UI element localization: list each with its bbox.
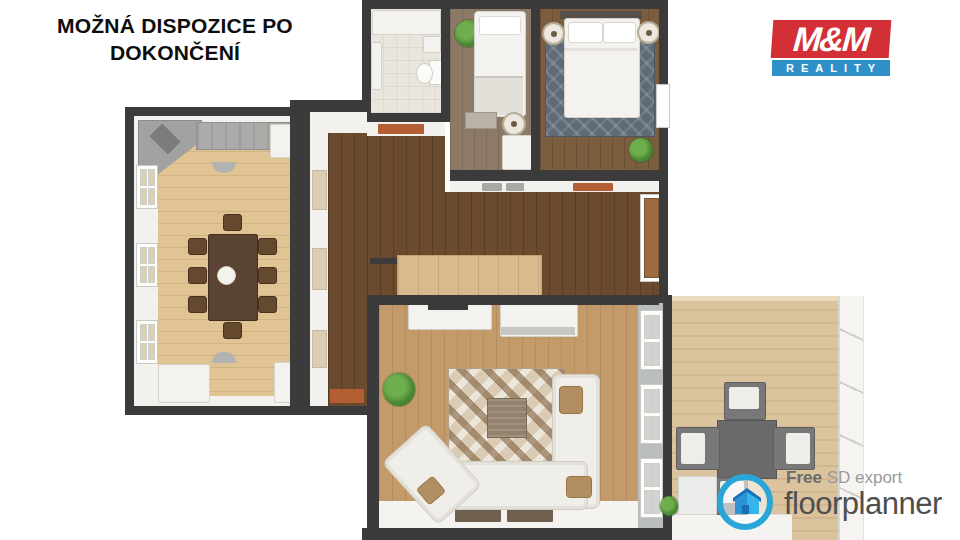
terrace-chair <box>676 427 720 470</box>
floorplanner-logo-ring <box>717 474 773 530</box>
dining-chair <box>223 322 242 339</box>
wall-niche <box>312 248 327 290</box>
wall <box>367 295 659 305</box>
wall-niche <box>312 170 327 210</box>
dining-window <box>136 243 158 287</box>
wall <box>531 0 540 172</box>
doormat-terracotta <box>573 183 613 191</box>
single-bed-pillow <box>479 16 521 35</box>
doormat-gray <box>482 183 502 191</box>
floorplan-render: MOŽNÁ DISPOZICE PO DOKONČENÍ M&M REALITY <box>0 0 960 540</box>
wall <box>659 182 668 303</box>
hallway-floor <box>328 133 367 406</box>
plate <box>217 266 236 285</box>
doormat-terracotta <box>330 389 364 403</box>
terrace-chair <box>773 427 815 470</box>
page-title-line2: DOKONČENÍ <box>110 41 240 64</box>
terrace-white-cube <box>678 476 717 515</box>
plant-master-bedroom <box>629 138 653 162</box>
coffee-table <box>487 398 527 438</box>
sofa-cushion <box>559 386 583 414</box>
dining-chair <box>258 267 277 284</box>
nightstand-lamp-right <box>637 21 660 44</box>
dining-chair <box>223 214 242 231</box>
living-window <box>640 384 663 444</box>
dining-chair <box>258 238 277 255</box>
wall <box>290 100 370 112</box>
doormat-terracotta <box>378 124 424 134</box>
toilet-bowl <box>416 63 433 84</box>
wall-niche <box>312 330 327 368</box>
wall <box>125 107 134 415</box>
floorplanner-export-label: Free SD export <box>786 468 902 488</box>
dining-chair <box>258 296 277 313</box>
floorplanner-house-icon <box>723 480 767 524</box>
sink <box>423 36 441 53</box>
plant-living-room <box>383 373 415 406</box>
bathroom-cabinet <box>371 42 382 90</box>
dining-window <box>136 165 158 209</box>
terrace-deck-edge <box>672 296 838 301</box>
shower-tub <box>372 10 441 35</box>
single-bed-blanket <box>475 76 523 115</box>
pouf <box>502 112 526 136</box>
floorplanner-brand-label: floorplanner <box>784 486 942 522</box>
nightstand-lamp-left <box>542 22 565 45</box>
media-cabinet-base <box>501 327 575 335</box>
stairs-block <box>397 255 542 298</box>
page-title-line1: MOŽNÁ DISPOZICE PO <box>57 14 293 37</box>
mm-logo-mark: M&M <box>771 20 892 58</box>
sofa-cushion <box>566 476 592 498</box>
mm-logo-tagline: REALITY <box>772 60 890 76</box>
wall <box>362 528 668 540</box>
living-window <box>640 310 663 370</box>
wall <box>362 0 668 9</box>
bed-bench <box>465 112 497 129</box>
stair-rail <box>370 258 397 264</box>
dining-window <box>136 320 158 364</box>
double-bed-pillow-right <box>603 22 636 43</box>
dining-chair <box>188 296 207 313</box>
double-bed-pillow-left <box>568 22 603 43</box>
sideboard <box>158 364 210 403</box>
bedroom-window <box>656 84 670 128</box>
interior-door <box>644 198 659 278</box>
wall <box>367 295 379 540</box>
wall <box>290 107 310 415</box>
plant-terrace <box>660 496 678 516</box>
doormat-gray <box>506 183 524 191</box>
mm-reality-logo: M&M REALITY <box>772 20 890 76</box>
wardrobe <box>502 135 532 170</box>
dining-chair <box>188 238 207 255</box>
free-label: Free <box>786 468 822 487</box>
terrace-chair <box>724 382 766 420</box>
wall <box>450 170 668 181</box>
wall <box>441 0 450 122</box>
dining-chair <box>188 267 207 284</box>
page-title: MOŽNÁ DISPOZICE PO DOKONČENÍ <box>40 12 310 66</box>
wall <box>362 113 450 122</box>
terrace-table <box>717 420 777 479</box>
double-bed-duvet-fold <box>565 48 637 51</box>
